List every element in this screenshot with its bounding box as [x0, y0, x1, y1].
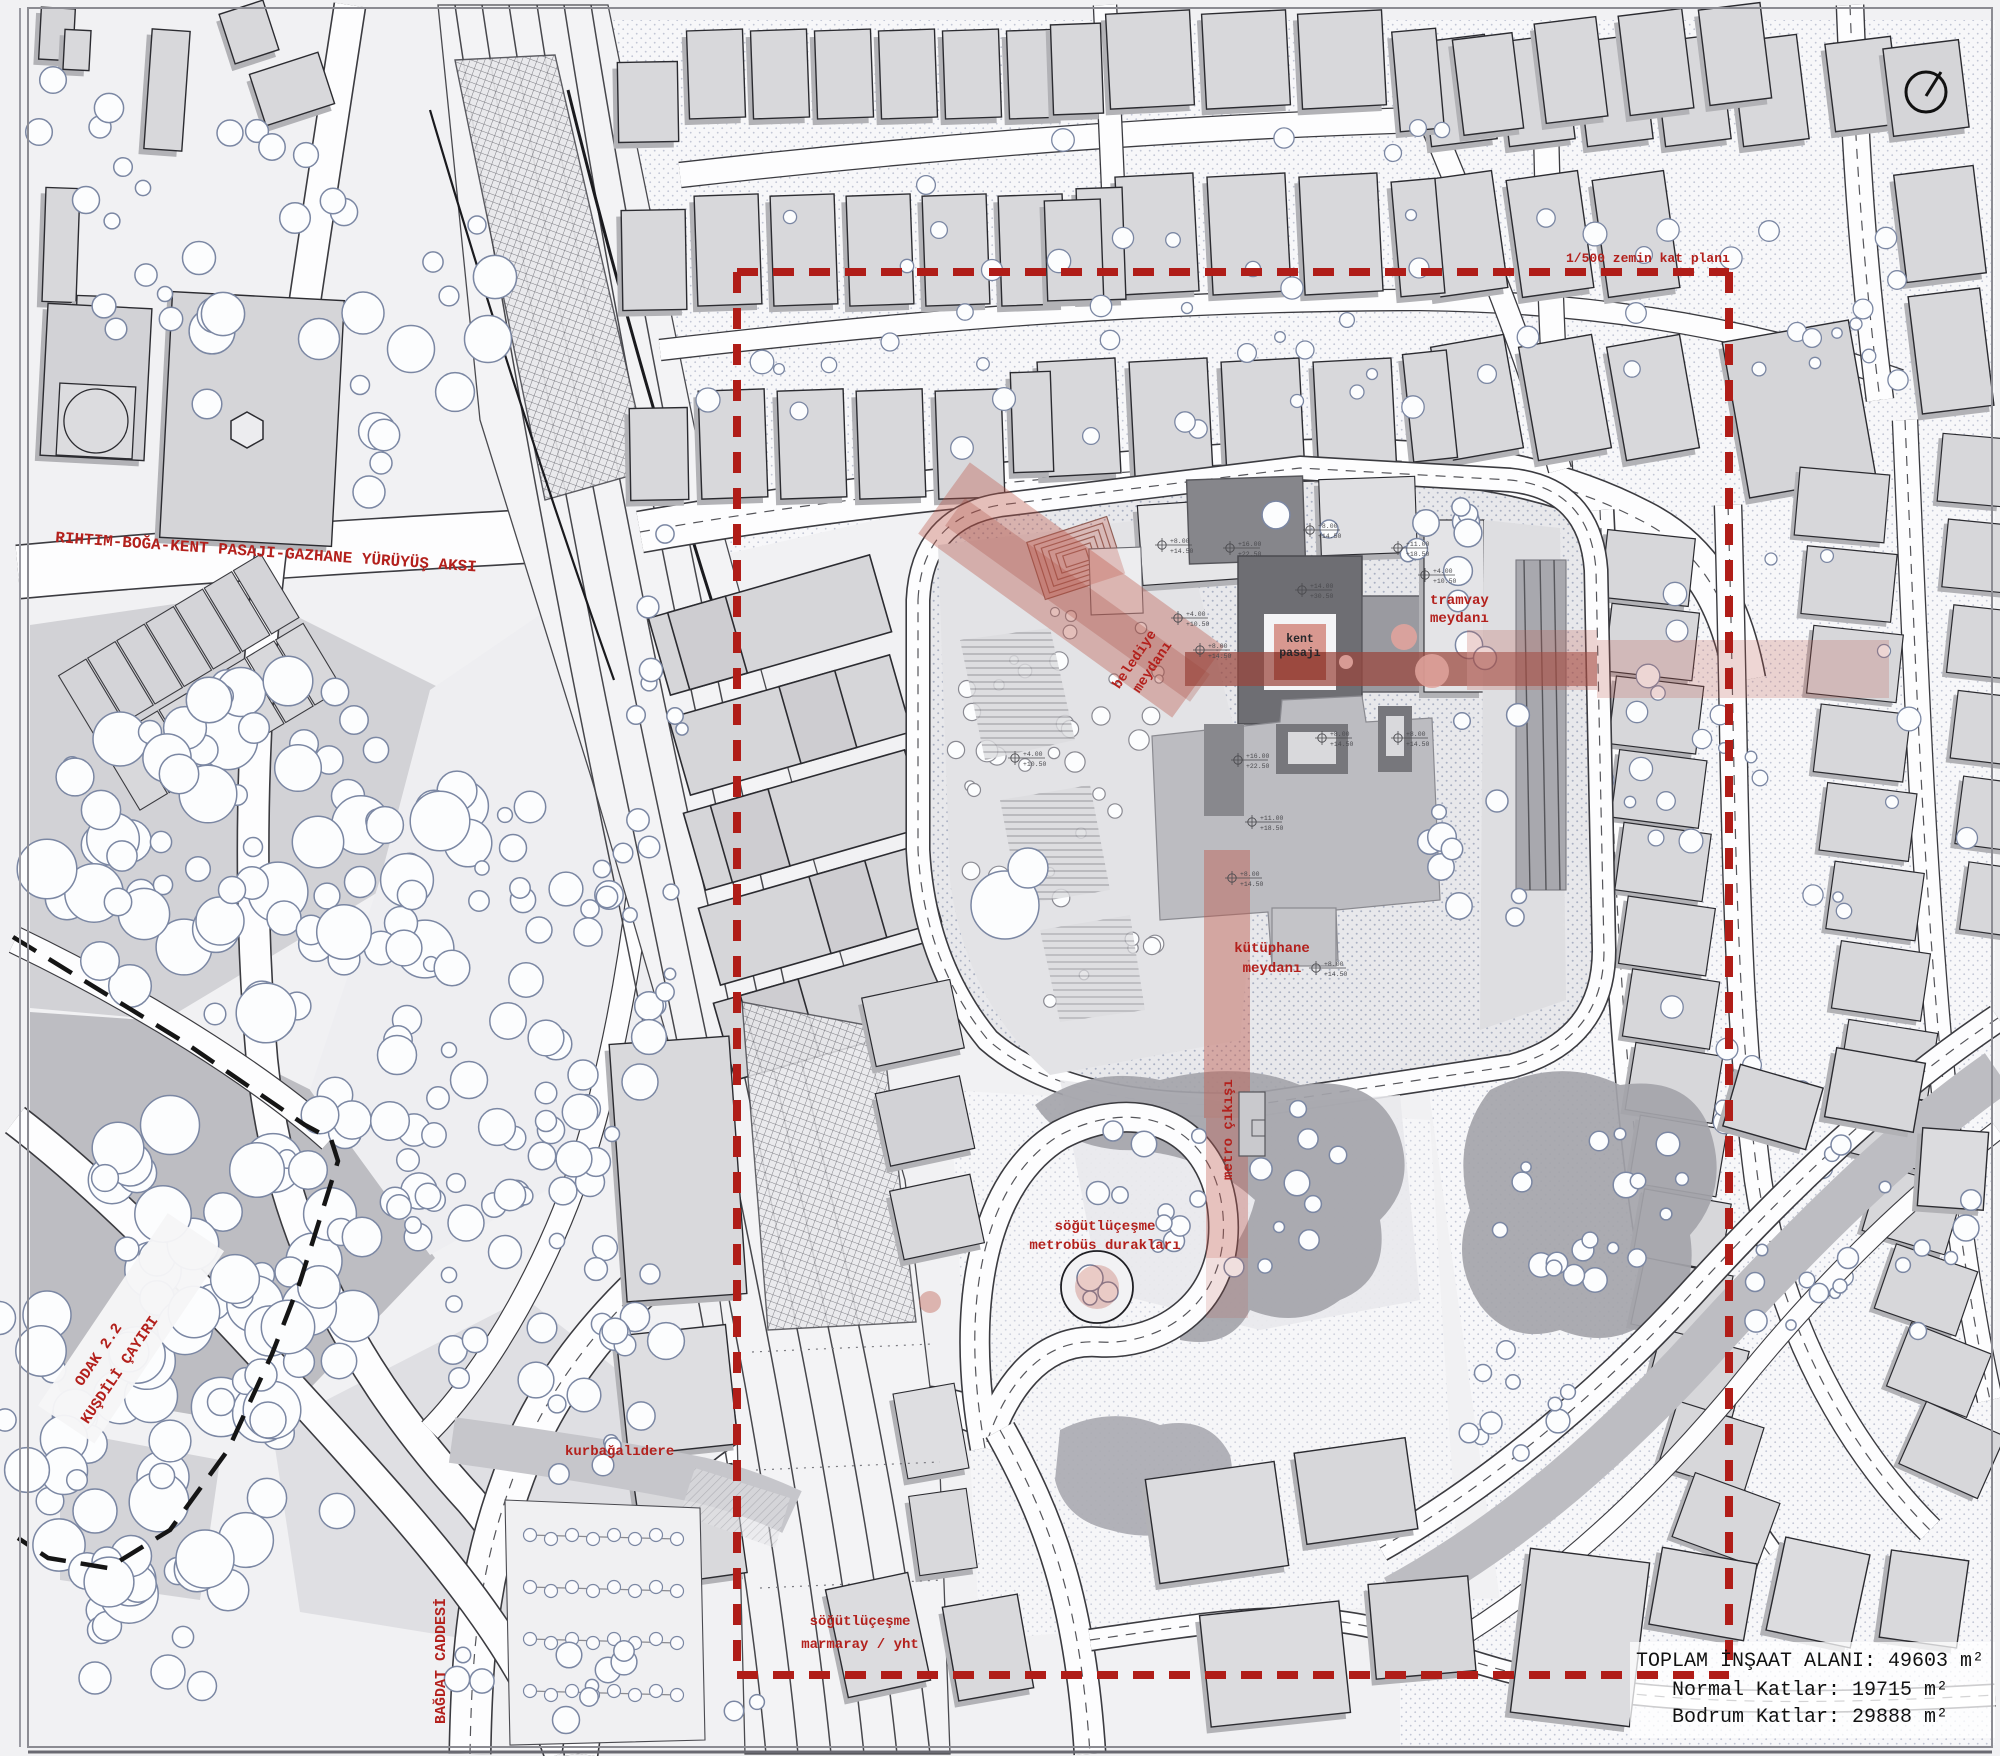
svg-text:kurbağalıdere: kurbağalıdere: [565, 1444, 674, 1460]
svg-text:+10.50: +10.50: [1433, 578, 1457, 585]
svg-text:+22.50: +22.50: [1238, 551, 1262, 558]
svg-text:metro çıkışı: metro çıkışı: [1221, 1079, 1237, 1180]
svg-text:+14.50: +14.50: [1240, 881, 1264, 888]
svg-text:+10.50: +10.50: [1023, 761, 1047, 768]
svg-text:+8.00: +8.00: [1330, 731, 1350, 738]
svg-text:+8.00: +8.00: [1318, 523, 1338, 530]
svg-text:+8.00: +8.00: [1406, 731, 1426, 738]
svg-text:+11.00: +11.00: [1406, 541, 1430, 548]
svg-text:+18.50: +18.50: [1406, 551, 1430, 558]
svg-text:+14.50: +14.50: [1406, 741, 1430, 748]
svg-text:+4.00: +4.00: [1433, 568, 1453, 575]
svg-text:+30.50: +30.50: [1310, 593, 1334, 600]
svg-text:pasajı: pasajı: [1279, 647, 1321, 660]
svg-text:kütüphane: kütüphane: [1234, 941, 1310, 957]
svg-text:+11.00: +11.00: [1260, 815, 1284, 822]
svg-text:+14.50: +14.50: [1208, 653, 1232, 660]
svg-text:+14.50: +14.50: [1318, 533, 1342, 540]
svg-text:1/500 zemin kat planı: 1/500 zemin kat planı: [1566, 251, 1730, 266]
svg-text:+14.50: +14.50: [1170, 548, 1194, 555]
svg-text:+14.00: +14.00: [1310, 583, 1334, 590]
svg-text:+8.00: +8.00: [1324, 961, 1344, 968]
svg-text:+16.00: +16.00: [1246, 753, 1270, 760]
svg-text:+22.50: +22.50: [1246, 763, 1270, 770]
svg-text:BAĞDAT CADDESİ: BAĞDAT CADDESİ: [432, 1598, 450, 1724]
svg-text:+18.50: +18.50: [1260, 825, 1284, 832]
svg-text:tramvay: tramvay: [1430, 593, 1489, 609]
svg-text:söğütlüçeşme: söğütlüçeşme: [810, 1614, 911, 1630]
svg-text:+14.50: +14.50: [1330, 741, 1354, 748]
svg-text:söğütlüçeşme: söğütlüçeşme: [1055, 1219, 1156, 1235]
svg-text:Normal Katlar: 19715 m²: Normal Katlar: 19715 m²: [1672, 1679, 1948, 1702]
svg-text:+4.00: +4.00: [1023, 751, 1043, 758]
svg-text:marmaray / yht: marmaray / yht: [801, 1637, 919, 1653]
svg-text:+8.00: +8.00: [1208, 643, 1228, 650]
svg-text:+10.50: +10.50: [1186, 621, 1210, 628]
svg-text:meydanı: meydanı: [1243, 961, 1302, 977]
svg-text:+4.00: +4.00: [1186, 611, 1206, 618]
svg-text:TOPLAM İNŞAAT ALANI: 49603 m²: TOPLAM İNŞAAT ALANI: 49603 m²: [1636, 1650, 1984, 1673]
svg-text:meydanı: meydanı: [1430, 611, 1489, 627]
svg-text:+8.00: +8.00: [1170, 538, 1190, 545]
svg-text:kent: kent: [1286, 633, 1314, 646]
svg-text:+8.00: +8.00: [1240, 871, 1260, 878]
svg-text:metrobüs durakları: metrobüs durakları: [1029, 1238, 1180, 1254]
svg-text:+14.50: +14.50: [1324, 971, 1348, 978]
svg-text:Bodrum Katlar: 29888 m²: Bodrum Katlar: 29888 m²: [1672, 1706, 1948, 1729]
svg-text:+16.00: +16.00: [1238, 541, 1262, 548]
